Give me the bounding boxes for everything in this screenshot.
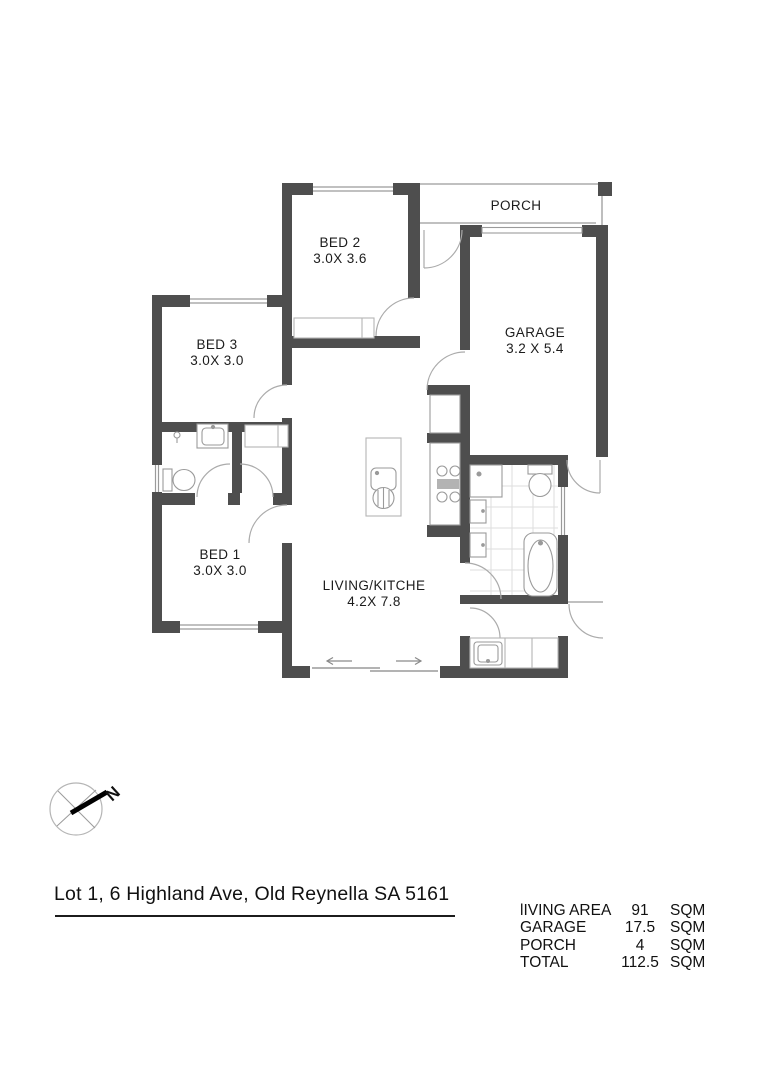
area-table: lIVING AREA 91 SQM GARAGE 17.5 SQM PORCH… (520, 902, 716, 972)
area-value: 112.5 (618, 954, 662, 971)
area-row-living: lIVING AREA 91 SQM (520, 902, 716, 919)
area-label: TOTAL (520, 954, 618, 971)
area-row-garage: GARAGE 17.5 SQM (520, 919, 716, 936)
area-label: lIVING AREA (520, 902, 618, 919)
floor-plan-page: { "plan": { "rooms": [ {"name": "BED 2",… (0, 0, 764, 1080)
area-value: 4 (618, 937, 662, 954)
area-row-porch: PORCH 4 SQM (520, 937, 716, 954)
property-address: Lot 1, 6 Highland Ave, Old Reynella SA 5… (54, 883, 449, 906)
area-value: 17.5 (618, 919, 662, 936)
area-label: GARAGE (520, 919, 618, 936)
area-label: PORCH (520, 937, 618, 954)
area-value: 91 (618, 902, 662, 919)
footer: Lot 1, 6 Highland Ave, Old Reynella SA 5… (0, 0, 764, 1080)
area-unit: SQM (662, 902, 716, 919)
area-unit: SQM (662, 919, 716, 936)
area-row-total: TOTAL 112.5 SQM (520, 954, 716, 971)
address-underline (55, 915, 455, 917)
area-unit: SQM (662, 937, 716, 954)
area-unit: SQM (662, 954, 716, 971)
